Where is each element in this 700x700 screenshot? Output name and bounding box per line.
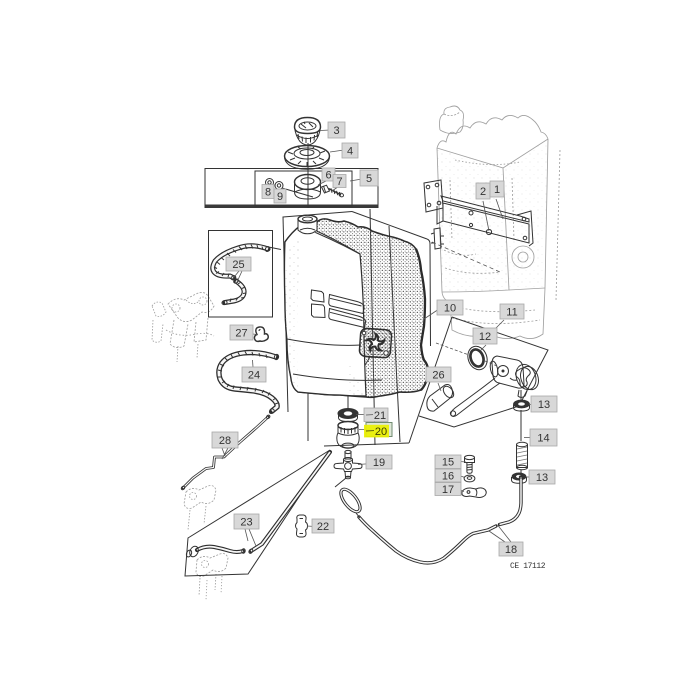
svg-text:5: 5 [366, 173, 372, 185]
svg-text:26: 26 [432, 370, 444, 382]
svg-text:15: 15 [442, 457, 454, 469]
svg-text:27: 27 [235, 328, 247, 340]
svg-text:8: 8 [265, 187, 271, 199]
svg-text:20: 20 [375, 426, 387, 438]
svg-text:18: 18 [505, 544, 517, 556]
svg-text:28: 28 [219, 435, 231, 447]
svg-text:CE 17112: CE 17112 [510, 562, 546, 571]
svg-text:23: 23 [240, 517, 252, 529]
svg-text:25: 25 [232, 259, 244, 271]
svg-text:2: 2 [480, 186, 486, 198]
svg-text:13: 13 [536, 472, 548, 484]
svg-text:19: 19 [373, 457, 385, 469]
svg-text:1: 1 [494, 184, 500, 196]
svg-text:21: 21 [374, 410, 386, 422]
svg-text:14: 14 [537, 433, 549, 445]
svg-text:11: 11 [506, 307, 517, 319]
svg-text:7: 7 [336, 176, 342, 188]
svg-text:13: 13 [538, 399, 550, 411]
svg-text:24: 24 [248, 370, 260, 382]
svg-text:9: 9 [277, 191, 283, 203]
svg-text:17: 17 [442, 484, 454, 496]
svg-text:3: 3 [333, 125, 339, 137]
svg-text:4: 4 [347, 146, 353, 158]
svg-text:22: 22 [317, 521, 329, 533]
svg-text:10: 10 [444, 303, 456, 315]
svg-text:6: 6 [325, 170, 331, 182]
svg-text:16: 16 [442, 471, 454, 483]
svg-text:12: 12 [479, 331, 491, 343]
